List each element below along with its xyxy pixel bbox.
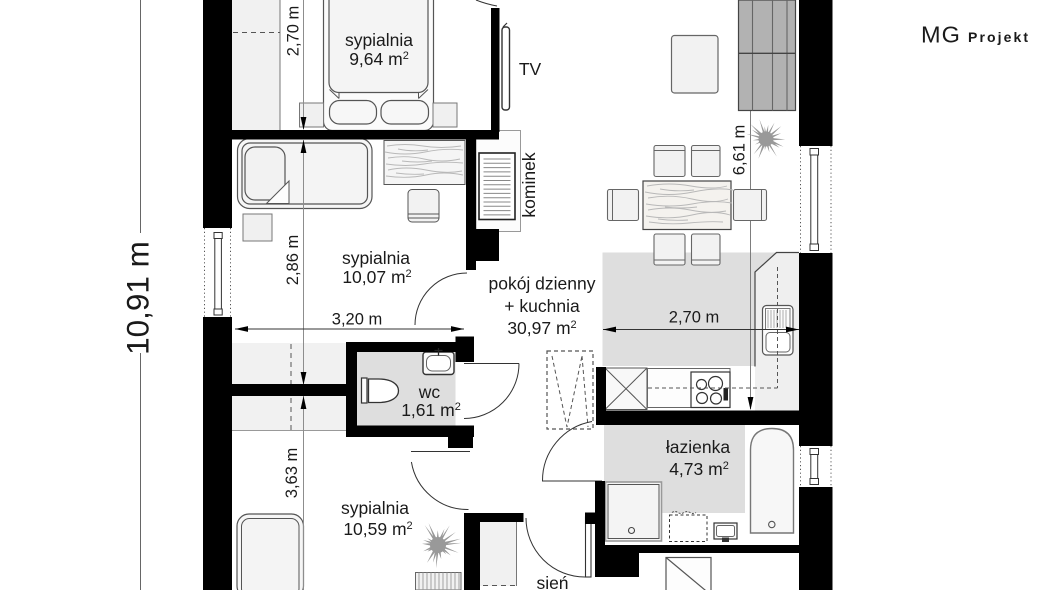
svg-text:1,61 m2: 1,61 m2 [401, 400, 461, 420]
svg-text:pokój dzienny: pokój dzienny [488, 274, 595, 294]
svg-text:sień: sień [536, 573, 568, 590]
svg-text:9,64 m2: 9,64 m2 [349, 49, 409, 69]
svg-text:2,70 m: 2,70 m [285, 6, 303, 56]
svg-text:2,70 m: 2,70 m [669, 309, 719, 327]
svg-text:10,07 m2: 10,07 m2 [342, 267, 411, 287]
svg-text:2,86 m: 2,86 m [284, 235, 302, 285]
svg-text:10,91 m: 10,91 m [120, 241, 156, 355]
svg-text:3,63 m: 3,63 m [283, 448, 301, 498]
svg-text:wc: wc [418, 382, 441, 402]
svg-text:6,61 m: 6,61 m [731, 125, 749, 175]
svg-text:sypialnia: sypialnia [345, 30, 413, 50]
svg-text:3,20 m: 3,20 m [332, 311, 382, 329]
svg-text:łazienka: łazienka [666, 437, 730, 457]
svg-text:MG: MG [921, 22, 961, 48]
svg-text:TV: TV [519, 59, 542, 79]
svg-text:10,59 m2: 10,59 m2 [343, 519, 412, 539]
svg-text:+ kuchnia: + kuchnia [504, 296, 580, 316]
svg-text:sypialnia: sypialnia [341, 498, 409, 518]
svg-text:kominek: kominek [519, 152, 539, 217]
svg-text:sypialnia: sypialnia [342, 248, 410, 268]
svg-text:4,73 m2: 4,73 m2 [669, 459, 729, 479]
svg-text:Projekt: Projekt [968, 29, 1030, 45]
svg-text:30,97 m2: 30,97 m2 [507, 318, 576, 338]
